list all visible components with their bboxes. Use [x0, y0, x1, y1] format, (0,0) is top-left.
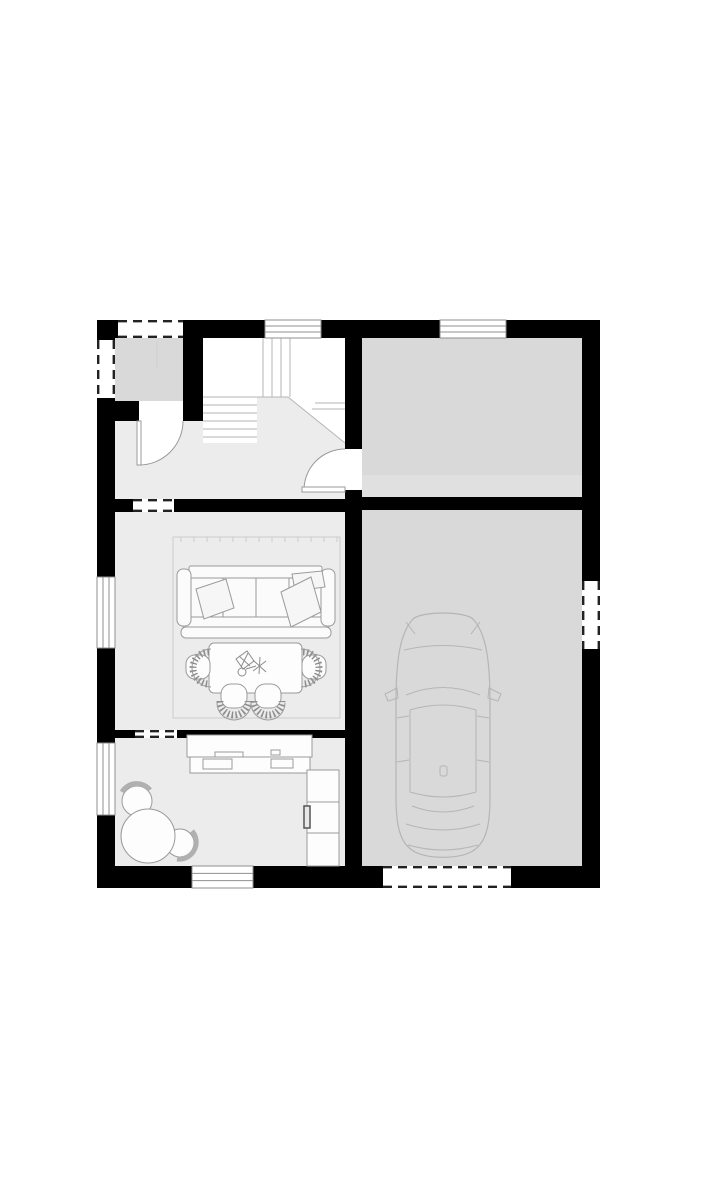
window-top-2-pane [440, 320, 506, 338]
opening-living-kitchen [135, 730, 177, 738]
window-bottom-pane [192, 866, 253, 888]
opening-porch-left [97, 340, 115, 398]
floor-plan-drawing [0, 0, 717, 1200]
window-top-2 [440, 320, 506, 338]
opening-porch-top-gap [118, 320, 183, 338]
opening-garage-door [383, 866, 511, 888]
opening-garage-door-gap [383, 866, 511, 888]
kitchen-counter-part [304, 806, 310, 828]
doorway-hall-storage [345, 449, 362, 490]
opening-garage-side [582, 581, 600, 649]
room-garage [362, 510, 582, 866]
window-left-1-pane [97, 577, 115, 648]
room-storage-floor-band [362, 475, 582, 497]
floor-plan-canvas [0, 0, 717, 1200]
wall-porch-bottom [97, 401, 139, 421]
opening-garage-side-gap [582, 581, 600, 649]
sofa-part [181, 627, 331, 638]
window-left-2 [97, 743, 115, 815]
opening-porch-top [118, 320, 183, 338]
wall-garage-separator [345, 338, 362, 866]
window-top-1 [265, 320, 321, 338]
window-bottom [192, 866, 253, 888]
chair-bottom-1-part [221, 684, 247, 708]
coffee-table [209, 643, 302, 693]
door-hall-storage-leaf [302, 487, 345, 492]
room-entry-porch [115, 338, 183, 401]
window-top-1-pane [265, 320, 321, 338]
kitchen-counter-part [187, 735, 312, 757]
door-entry-leaf [137, 421, 141, 465]
wall-porch-right [183, 338, 203, 421]
kitchen-counter-part [307, 770, 339, 866]
wall-bottom [97, 866, 600, 888]
room-storage [362, 338, 582, 497]
opening-hall-living [133, 499, 174, 512]
wall-storage-garage [362, 497, 582, 510]
window-left-1 [97, 577, 115, 648]
coffee-table-part [209, 643, 302, 693]
doorway-entry [139, 401, 183, 421]
sofa [177, 566, 335, 638]
breakfast-table-set-part [121, 809, 175, 863]
chair-bottom-2-part [255, 684, 281, 708]
opening-porch-left-gap [97, 340, 115, 398]
sofa-part [177, 569, 191, 626]
window-left-2-pane [97, 743, 115, 815]
